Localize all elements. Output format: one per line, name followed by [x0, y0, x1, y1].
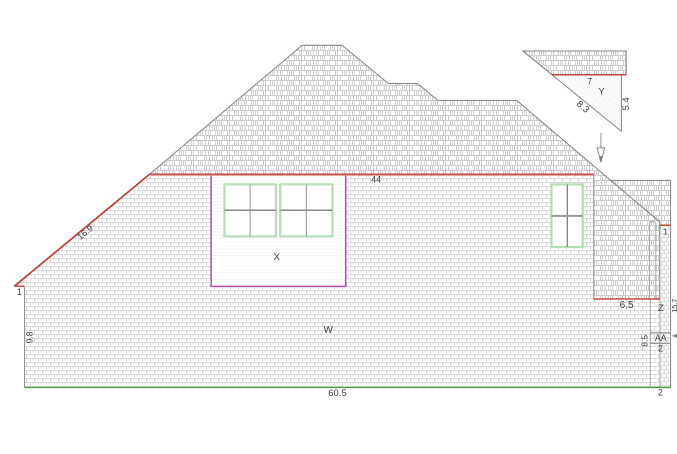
svg-text:1: 1	[17, 287, 22, 297]
svg-text:AA: AA	[655, 333, 667, 343]
svg-text:15.7: 15.7	[670, 299, 677, 313]
svg-text:8.5: 8.5	[640, 335, 650, 347]
svg-text:60.5: 60.5	[328, 388, 347, 399]
svg-text:44: 44	[371, 175, 381, 185]
svg-text:W: W	[324, 325, 334, 336]
svg-text:Y: Y	[598, 87, 605, 98]
svg-text:5.4: 5.4	[621, 97, 632, 110]
svg-text:Z: Z	[658, 303, 664, 314]
svg-text:X: X	[274, 252, 281, 263]
svg-text:1: 1	[663, 227, 668, 236]
svg-text:9.8: 9.8	[25, 331, 35, 343]
svg-text:6.5: 6.5	[620, 300, 634, 311]
svg-text:2: 2	[658, 387, 663, 397]
svg-text:2: 2	[658, 343, 663, 353]
svg-text:7: 7	[587, 76, 592, 86]
